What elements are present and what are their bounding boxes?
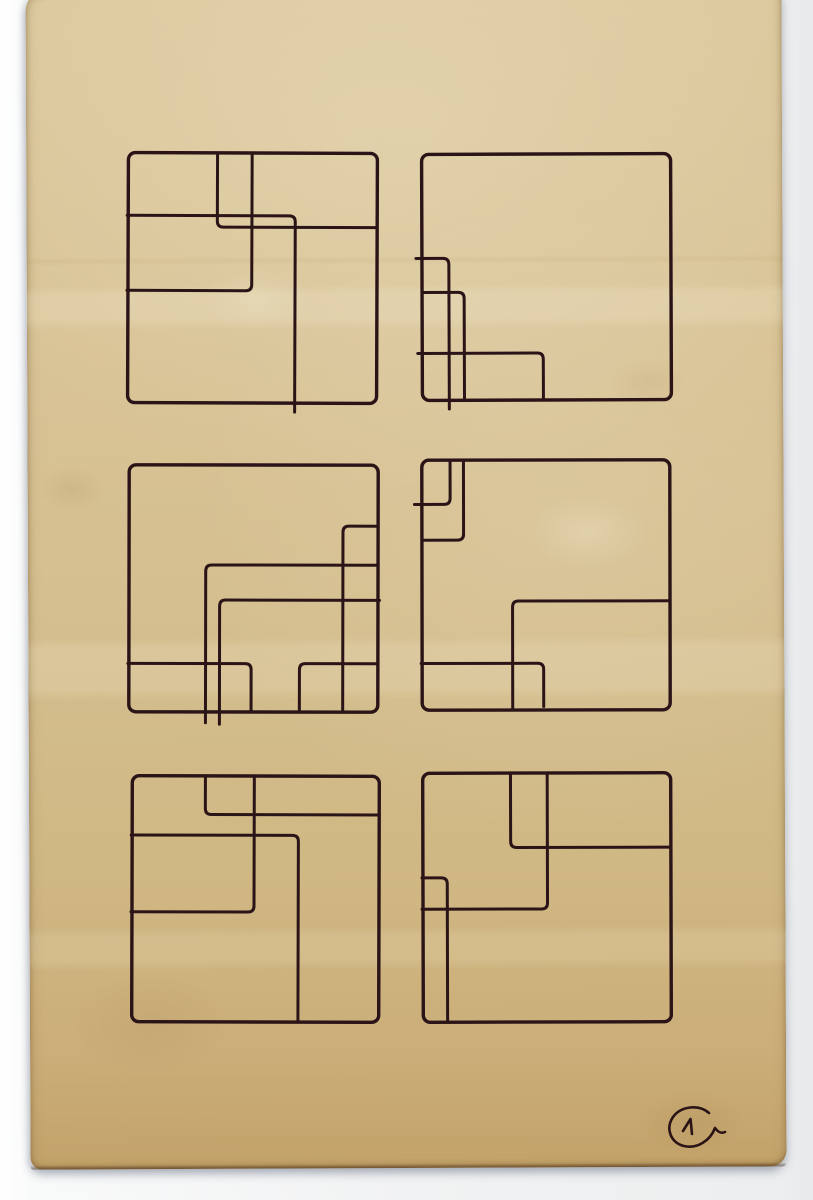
paper-sheet: [25, 0, 786, 1170]
scanned-sheet: [0, 0, 813, 1200]
paper-texture-streaks: [25, 0, 786, 1170]
paper-bottom-edge: [31, 1162, 787, 1169]
paper-stains: [25, 0, 786, 1170]
